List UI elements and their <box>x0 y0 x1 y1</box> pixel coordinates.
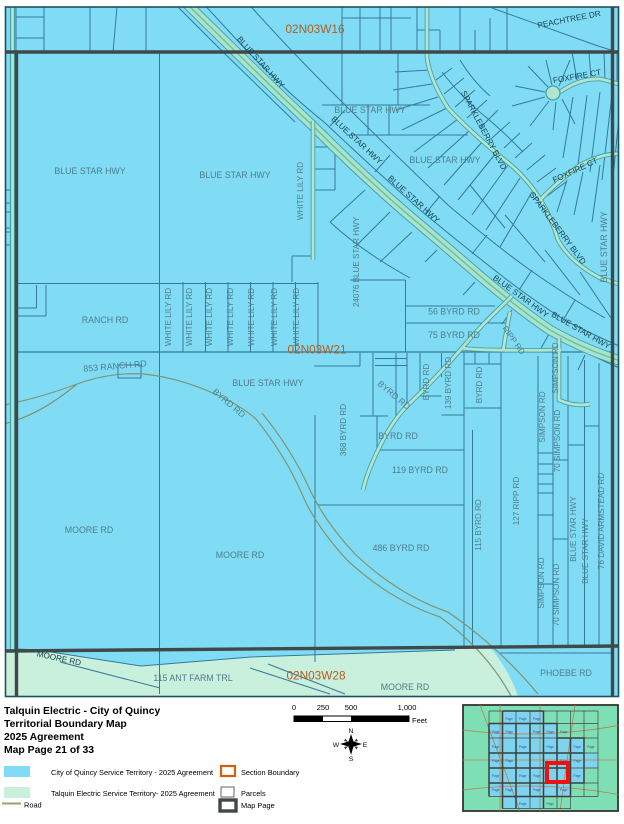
svg-text:MOORE RD: MOORE RD <box>216 550 264 560</box>
svg-text:0: 0 <box>292 703 296 712</box>
svg-text:WHITE LILY RD: WHITE LILY RD <box>164 288 173 346</box>
svg-text:Page: Page <box>519 717 527 721</box>
svg-text:Parcels: Parcels <box>241 789 266 798</box>
svg-text:127 RIPP RD: 127 RIPP RD <box>512 477 521 526</box>
svg-text:Page: Page <box>506 730 514 734</box>
svg-text:WHITE LILY RD: WHITE LILY RD <box>185 288 194 346</box>
svg-text:02N03W16: 02N03W16 <box>285 22 344 36</box>
svg-text:250: 250 <box>317 703 330 712</box>
svg-text:BLUE STAR HWY: BLUE STAR HWY <box>599 211 609 282</box>
svg-text:Feet: Feet <box>412 716 428 725</box>
svg-text:02N03W28: 02N03W28 <box>286 669 345 683</box>
svg-text:N: N <box>349 728 354 735</box>
svg-text:Page: Page <box>492 774 500 778</box>
svg-text:BLUE STAR HWY: BLUE STAR HWY <box>54 166 125 176</box>
svg-text:City of Quincy Service Territo: City of Quincy Service Territory - 2025 … <box>51 768 213 777</box>
svg-text:Page: Page <box>547 802 555 806</box>
svg-text:MOORE RD: MOORE RD <box>381 682 429 692</box>
svg-text:56 BYRD RD: 56 BYRD RD <box>428 307 480 317</box>
svg-text:76 DAVID ARMSTEAD RD: 76 DAVID ARMSTEAD RD <box>597 473 606 569</box>
svg-text:WHITE LILY RD: WHITE LILY RD <box>296 162 305 220</box>
svg-text:Page: Page <box>506 788 514 792</box>
svg-text:Page: Page <box>492 745 500 749</box>
svg-text:Page: Page <box>506 717 514 721</box>
svg-text:Page: Page <box>587 745 595 749</box>
svg-text:BLUE STAR HWY: BLUE STAR HWY <box>232 378 303 388</box>
svg-text:W: W <box>333 742 340 749</box>
svg-text:Page: Page <box>492 759 500 763</box>
svg-text:BYRD RD: BYRD RD <box>475 367 484 404</box>
svg-text:Map Page 21 of 33: Map Page 21 of 33 <box>4 745 94 756</box>
svg-text:BLUE STAR HWY: BLUE STAR HWY <box>581 518 590 584</box>
svg-text:BYRD RD: BYRD RD <box>422 364 431 401</box>
svg-text:70 SIMPSON RD: 70 SIMPSON RD <box>552 564 561 627</box>
svg-text:WHITE LILY RD: WHITE LILY RD <box>292 288 301 346</box>
svg-text:Page: Page <box>533 717 541 721</box>
svg-text:E: E <box>363 742 368 749</box>
svg-text:Territorial Boundary Map: Territorial Boundary Map <box>4 719 127 730</box>
svg-text:WHITE LILY RD: WHITE LILY RD <box>270 288 279 346</box>
svg-text:Road: Road <box>24 801 42 810</box>
svg-text:BLUE STAR HWY: BLUE STAR HWY <box>409 155 480 165</box>
svg-text:115 ANT FARM TRL: 115 ANT FARM TRL <box>153 673 232 683</box>
svg-text:Page: Page <box>533 730 541 734</box>
svg-text:75 BYRD RD: 75 BYRD RD <box>428 330 480 340</box>
svg-text:119 BYRD RD: 119 BYRD RD <box>392 465 448 475</box>
svg-text:Talquin Electric Service Terri: Talquin Electric Service Territory- 2025… <box>51 789 215 798</box>
svg-text:Section Boundary: Section Boundary <box>241 768 300 777</box>
svg-text:Map Page: Map Page <box>241 801 275 810</box>
svg-text:2025 Agreement: 2025 Agreement <box>4 732 84 743</box>
svg-text:24076 BLUE STAR HWY: 24076 BLUE STAR HWY <box>352 216 361 307</box>
svg-text:MOORE RD: MOORE RD <box>65 525 113 535</box>
svg-text:Page: Page <box>574 774 582 778</box>
svg-text:139 BYRD RD: 139 BYRD RD <box>444 357 453 409</box>
svg-text:Page: Page <box>574 759 582 763</box>
svg-text:WHITE LILY RD: WHITE LILY RD <box>205 288 214 346</box>
svg-text:BYRD RD: BYRD RD <box>378 431 418 441</box>
svg-text:500: 500 <box>345 703 358 712</box>
svg-text:Page: Page <box>506 759 514 763</box>
svg-text:BLUE STAR HWY: BLUE STAR HWY <box>569 496 578 562</box>
svg-text:Page: Page <box>533 788 541 792</box>
svg-text:Page: Page <box>519 745 527 749</box>
svg-text:Talquin Electric - City of Qui: Talquin Electric - City of Quincy <box>4 706 160 717</box>
svg-text:SIMPSON RD: SIMPSON RD <box>538 391 547 442</box>
svg-text:115 BYRD RD: 115 BYRD RD <box>474 499 483 551</box>
svg-text:486 BYRD RD: 486 BYRD RD <box>373 543 430 553</box>
svg-text:WHITE LILY RD: WHITE LILY RD <box>226 288 235 346</box>
svg-text:PHOEBE RD: PHOEBE RD <box>540 668 592 678</box>
svg-text:S: S <box>349 756 354 763</box>
svg-text:WHITE LILY RD: WHITE LILY RD <box>247 288 256 346</box>
svg-text:BLUE STAR HWY: BLUE STAR HWY <box>199 170 270 180</box>
svg-text:Page: Page <box>519 774 527 778</box>
svg-text:Page: Page <box>492 788 500 792</box>
svg-text:Page: Page <box>519 802 527 806</box>
svg-text:Page: Page <box>533 774 541 778</box>
svg-text:RANCH RD: RANCH RD <box>82 315 128 325</box>
svg-text:Page: Page <box>560 730 568 734</box>
svg-text:368 BYRD RD: 368 BYRD RD <box>339 404 348 456</box>
svg-text:1,000: 1,000 <box>398 703 417 712</box>
svg-text:SIMPSON RD: SIMPSON RD <box>537 557 546 608</box>
svg-text:70 SIMPSON RD: 70 SIMPSON RD <box>553 410 562 473</box>
svg-text:BLUE STAR HWY: BLUE STAR HWY <box>334 105 405 115</box>
svg-text:Page: Page <box>574 745 582 749</box>
svg-text:Page: Page <box>492 730 500 734</box>
svg-text:Page: Page <box>547 745 555 749</box>
svg-text:Page: Page <box>547 730 555 734</box>
svg-text:Page: Page <box>560 788 568 792</box>
svg-text:SIMPSON RD: SIMPSON RD <box>551 342 560 393</box>
